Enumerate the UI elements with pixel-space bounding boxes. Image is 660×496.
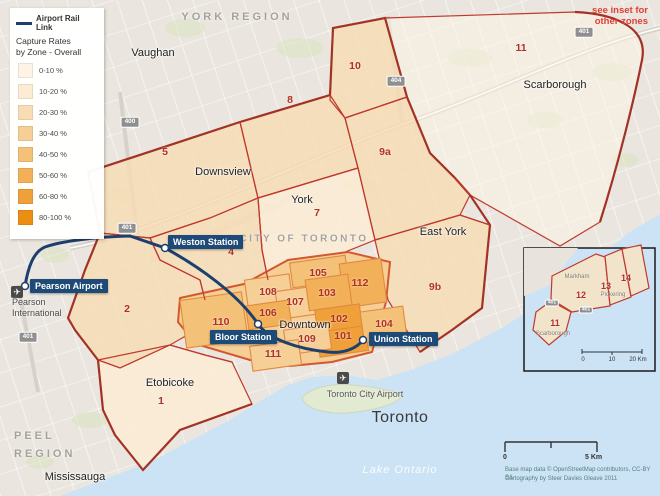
bloor-station-label: Bloor Station [210,330,277,344]
inset-note: see inset for other zones [592,6,648,28]
legend-item: 50-60 % [18,168,98,183]
legend-item: 60-80 % [18,189,98,204]
legend-rail-row: Airport Rail Link [16,14,98,32]
legend-item: 0-10 % [18,63,98,78]
highway-400-badge: 400 [121,117,140,128]
legend-swatch-10-20 [18,84,33,99]
legend-swatch-40-50 [18,147,33,162]
svg-text:✈: ✈ [339,373,347,383]
union-station-dot [360,337,367,344]
legend-swatch-50-60 [18,168,33,183]
zone-103-area [305,274,352,311]
legend-panel: Airport Rail Link Capture Rates by Zone … [10,8,104,239]
union-station-label: Union Station [369,332,438,346]
attribution-line-2: Cartography by Steer Davies Gleave 2011 [505,476,617,484]
map-canvas: ✈ ✈ Airport Rail Link Capture Rates [0,0,660,496]
inset-highway-401-badge-b: 401 [579,307,593,314]
scalebar-start-label: 0 [503,454,507,461]
pearson-airport-station-label: Pearson Airport [30,279,108,293]
legend-item: 80-100 % [18,210,98,225]
legend-item: 40-50 % [18,147,98,162]
legend-title: Capture Rates by Zone - Overall [16,36,98,57]
legend-item: 20-30 % [18,105,98,120]
highway-401-badge-west: 401 [118,223,137,234]
legend-swatch-60-80 [18,189,33,204]
legend-item: 10-20 % [18,84,98,99]
bloor-station-dot [255,321,262,328]
peel-region-label: PEEL REGION [14,428,75,463]
weston-station-label: Weston Station [168,235,243,249]
legend-swatch-80-100 [18,210,33,225]
legend-swatch-30-40 [18,126,33,141]
highway-401-badge-east: 401 [575,27,594,38]
scalebar-end-label: 5 Km [585,454,602,461]
svg-text:✈: ✈ [13,287,21,297]
legend-swatch-0-10 [18,63,33,78]
rail-line-label: Airport Rail Link [36,14,98,32]
highway-404-badge: 404 [387,76,406,87]
legend-swatch-20-30 [18,105,33,120]
inset-highway-401-badge-a: 401 [545,300,559,307]
highway-401-badge-southwest: 401 [19,332,38,343]
rail-line-swatch [16,22,32,25]
legend-item: 30-40 % [18,126,98,141]
pearson-international-label: Pearson International [12,297,62,320]
